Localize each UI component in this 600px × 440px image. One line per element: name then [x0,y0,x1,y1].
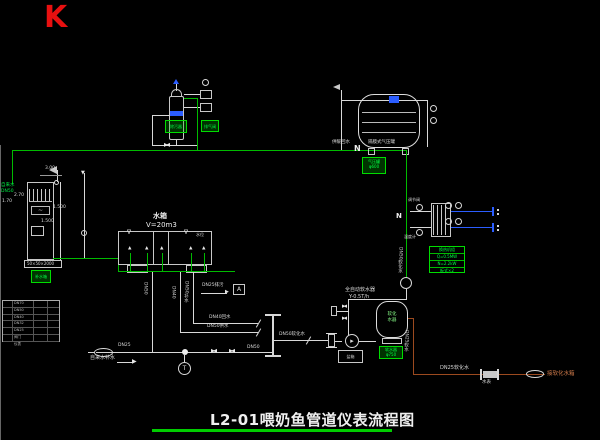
green-pipe [53,258,118,259]
arrow-icon: ▼ [81,171,85,176]
blue-terminal [492,207,494,216]
equipment-tag: 气压罐 φ600 [362,157,386,174]
strainer-oval-icon [526,370,544,378]
pipe-label: DN50供水 [207,325,229,330]
arrow-icon: ▶ [225,290,229,295]
pipe-label: DN50软化水 [279,333,305,338]
instrument-circle-icon [455,202,462,209]
equipment-tag: 除污器 [165,120,187,133]
tank-name: 水箱 [153,213,167,221]
tank-inner-box [31,226,44,236]
vessel-base [382,338,402,344]
junction-dot [182,349,188,355]
pipe-label: DN50软化水 [397,247,402,273]
blue-pipe [451,227,492,228]
pipe-line [180,272,181,332]
feed-riser-label: DN50 [1,190,14,195]
instrument-circle-icon [54,180,59,185]
pipe-label: 调节阀 [408,198,420,202]
pipe-line [274,340,328,341]
riser-header [272,315,274,357]
arrow-icon: ▶ [132,359,137,365]
dimension-label: 3.00 [45,167,55,172]
legend-table: DN70 DN50 DN40 DN32 DN25 阀门 仪表 [2,300,60,342]
pipe-line [359,341,376,342]
valve-icon: ▸◂ [229,347,233,355]
pipe-line [410,227,431,228]
tag-label: φ600 [363,165,385,170]
pipe-label: 供暖回水 [332,141,350,146]
title-underline [152,429,392,432]
pipe-line [337,311,348,312]
instrument-circle-icon [430,105,437,112]
instrument-circle-icon [416,229,423,236]
node-marker: N [354,145,361,154]
pipe-line [193,272,194,323]
water-level-icon: ∇ [184,230,188,236]
valve-icon: ▸◂ [342,315,345,322]
terminal-dot [497,209,499,211]
spec-row: Q=0.5MW [430,254,464,261]
orange-pipe [413,318,414,375]
gauge-letter: T [183,365,187,372]
spec-row: 板式×2 [430,268,464,274]
instrument-circle-icon [445,202,452,209]
check-stub [130,253,131,271]
arrow-icon: ▲ [202,247,205,252]
tank-hatch [29,189,52,202]
pipe-line [180,332,258,333]
tank-inner-line [362,132,416,133]
pipe-line [152,115,170,116]
legend-row: 仪表 [3,342,59,348]
gauge-circle-icon: T [178,362,191,375]
arrow-icon: ▲ [128,247,131,252]
pipe-label: 温度计 [404,235,416,239]
tag-label: 排气阀 [204,124,216,129]
break-symbol [256,328,261,336]
drawing-title: L2-01喂奶鱼管道仪表流程图 [210,409,415,430]
equipment-tag: 排气阀 [201,120,219,132]
terminal-dot [497,213,499,215]
pipe-line [117,362,133,363]
tank-volume: V=20m3 [146,222,177,230]
spec-row: 换热机组 [430,247,464,254]
water-level-icon: ∇ [127,230,131,236]
instrument-box [200,103,212,112]
check-stub [162,253,163,271]
equipment-tag: 补水箱 [31,270,51,283]
pipe-line [335,341,342,342]
tag-label: φ750 [380,353,402,358]
valve-icon: ▸◂ [164,141,168,149]
base-label: 50×50×2000 [27,262,54,266]
pipe-label: DN25软化水 [440,366,469,372]
pipe-line [60,182,61,260]
arrow-icon: ▲ [145,247,148,252]
green-pipe [406,150,407,278]
pipe-label: DN50 [247,346,260,351]
flange-cap [326,333,337,334]
pipe-line [152,115,153,145]
instrument-circle-icon [400,277,412,289]
instrument-circle-icon [202,79,209,86]
instrument-circle-icon [81,230,87,236]
pipe-label: DN25排污 [202,284,224,289]
flange-cap [265,355,281,357]
pipe-line [88,352,94,353]
pipe-line [84,173,85,258]
filter-vessel [169,96,184,140]
pipe-label: DN25 [118,344,131,349]
filter-band [170,111,183,116]
instrument-circle-icon [416,204,423,211]
arrow-icon: ▲ [160,247,163,252]
tank-inner-line [362,112,416,113]
tag-label: 除污器 [170,124,182,129]
cad-canvas: K ▸◂ 除污器 排气阀 自来水 DN50 3.00 2.70 1.70 ~ 1… [0,0,600,440]
dimension-label: 1.500 [41,220,54,225]
skid-label: 盐箱 [347,354,355,359]
equipment-tag: 软水器 φ750 [379,346,403,359]
skid-frame: 盐箱 [338,350,363,363]
leader-line [40,175,62,176]
spec-row: N=2.2kW [430,261,464,268]
pipe-line [410,211,431,212]
check-stub [147,253,148,271]
check-stub [204,253,205,271]
pipe-fitting [328,334,335,347]
pipe-label: DN40 [170,286,175,299]
tank-base-label-box: 50×50×2000 [24,260,62,268]
meter-label: 水表 [482,381,491,386]
pipe-line [184,94,200,95]
check-stub [191,253,192,271]
corner-marker: K [44,0,67,35]
equipment-label: 全自动软水器 [345,288,375,294]
green-pipe [12,150,13,184]
valve-icon: ▸◂ [211,347,215,355]
drain-box-label: A [237,286,241,293]
pipe-line [152,145,198,146]
blue-terminal [492,223,494,232]
terminal-dot [497,229,499,231]
pipe-label: DN50 [142,282,147,295]
node-marker: N [396,213,402,221]
pipe-line [201,293,227,294]
orange-end-label: 接软化水箱 [547,369,575,377]
meter-flange [480,369,482,380]
flange-cap [326,347,337,348]
valve-icon: ▸◂ [342,303,345,310]
instrument-circle-icon [445,218,452,225]
filter-dome [171,89,182,96]
arrow-icon: ▲ [189,247,192,252]
tank-leg [368,148,375,155]
pipe-line [341,90,342,100]
meter-flange [497,369,499,380]
pipe-line [427,100,428,147]
vent-flag-icon [333,84,340,90]
main-header-pipe [12,150,406,151]
pipe-line [406,289,407,300]
pipe-line [348,299,406,300]
tank-inner-line [362,122,416,123]
pipe-line [152,272,153,352]
instrument-circle-icon [430,117,437,124]
pipe-label: DN50补水 [183,281,188,303]
green-pipe [118,271,235,272]
vent-tip-icon [173,79,179,84]
flange-cap [265,314,281,316]
instrument-box [200,90,212,99]
drain-target-box: A [233,284,245,295]
pump-icon: ▸ [345,334,359,348]
equipment-label: 隔膜式气压罐 [368,141,395,146]
tank-note: 水位 [196,233,204,237]
spec-table: 换热机组 Q=0.5MW N=2.2kW 板式×2 [429,246,465,273]
green-pipe [197,98,198,150]
terminal-dot [497,225,499,227]
blue-pipe [451,211,492,212]
vessel-label: 水器 [377,317,407,323]
break-symbol [256,319,261,327]
pipe-label: DN25软水 [403,330,408,352]
tank-inner-box: ~ [31,206,50,215]
pipe-label: DN40回水 [209,316,231,321]
feed-label: 自来水补水 [90,356,115,362]
tag-label: 补水箱 [35,274,47,279]
dimension-label: 1.70 [2,200,12,205]
dimension-label: 2.70 [14,194,24,199]
green-pipe [184,98,197,99]
pipe-line [348,299,349,335]
water-meter-icon [483,371,497,378]
instrument-circle-icon [455,218,462,225]
pipe-line [184,355,185,362]
